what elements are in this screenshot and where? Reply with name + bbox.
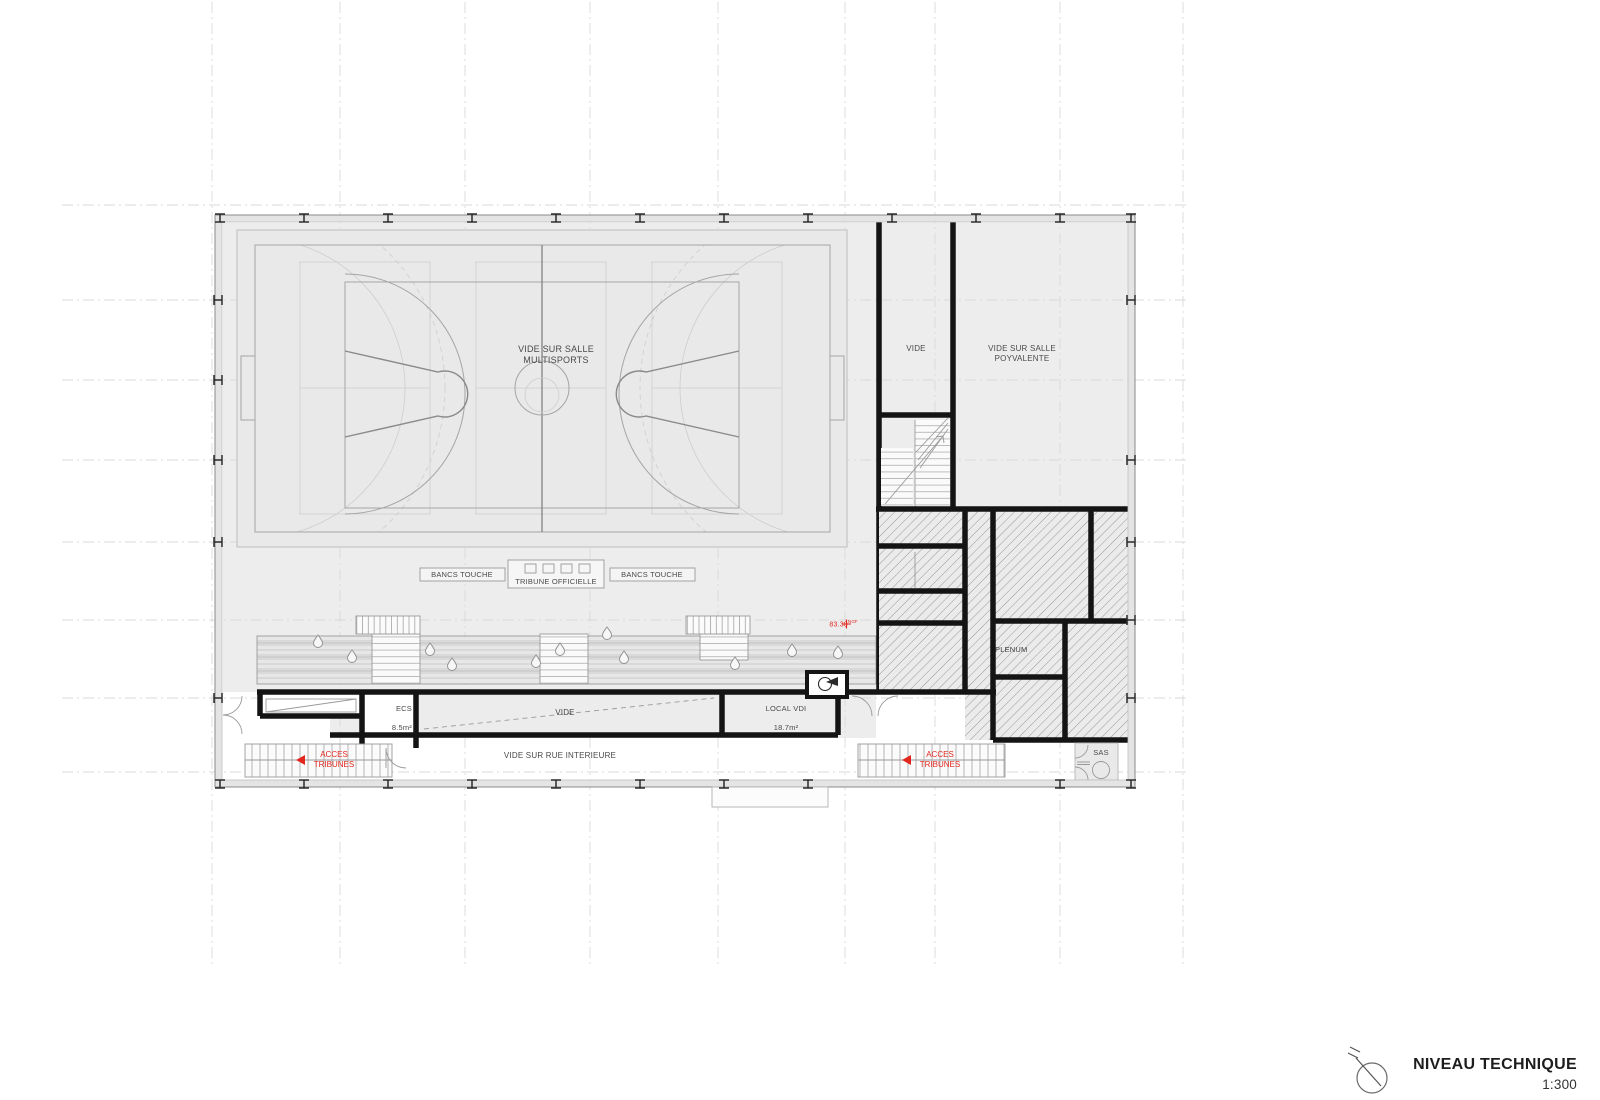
- sas-label: SAS: [1086, 748, 1116, 757]
- ecs-room-area: 8.5m²: [392, 723, 412, 732]
- local-vdi-name: LOCAL VDI: [766, 704, 807, 713]
- ecs-room-name: ECS: [396, 704, 412, 713]
- floor-plan-sheet: VIDE SUR SALLE MULTISPORTS VIDE VIDE SUR…: [0, 0, 1600, 1100]
- local-vdi-label: LOCAL VDI 18.7m²: [746, 695, 826, 733]
- acces-tribunes-right: ACCES TRIBUNES: [902, 750, 966, 770]
- court-label: VIDE SUR SALLE MULTISPORTS: [514, 344, 598, 367]
- floor-plan-drawing: [0, 0, 1600, 1100]
- sheet-scale: 1:300: [1542, 1077, 1577, 1094]
- level-value: 83.30: [829, 621, 848, 628]
- red-arrow-right-icon: [902, 755, 911, 765]
- level-mark: 83.30NGF: [829, 610, 858, 630]
- sheet-title: NIVEAU TECHNIQUE: [1413, 1055, 1577, 1075]
- north-arrow-icon: [1348, 1047, 1387, 1093]
- acces-tribunes-left-label: ACCES TRIBUNES: [308, 750, 360, 770]
- bancs-touche-right-label: BANCS TOUCHE: [607, 570, 697, 579]
- ecs-room-label: ECS 8.5m²: [392, 695, 412, 733]
- local-vdi-area: 18.7m²: [774, 723, 799, 732]
- bancs-touche-left-label: BANCS TOUCHE: [417, 570, 507, 579]
- tribune-officielle-label: TRIBUNE OFFICIELLE: [508, 577, 604, 586]
- polyvalente-label: VIDE SUR SALLE POYVALENTE: [977, 344, 1067, 364]
- red-arrow-left-icon: [296, 755, 305, 765]
- level-unit: NGF: [848, 619, 858, 624]
- acces-tribunes-left: ACCES TRIBUNES: [296, 750, 360, 770]
- acces-tribunes-right-label: ACCES TRIBUNES: [914, 750, 966, 770]
- vide-room-label: VIDE: [545, 708, 585, 718]
- void-shaft-label: VIDE: [896, 344, 936, 354]
- plenum-label: PLENUM: [995, 645, 1027, 654]
- rue-interieure-label: VIDE SUR RUE INTERIEURE: [480, 751, 640, 761]
